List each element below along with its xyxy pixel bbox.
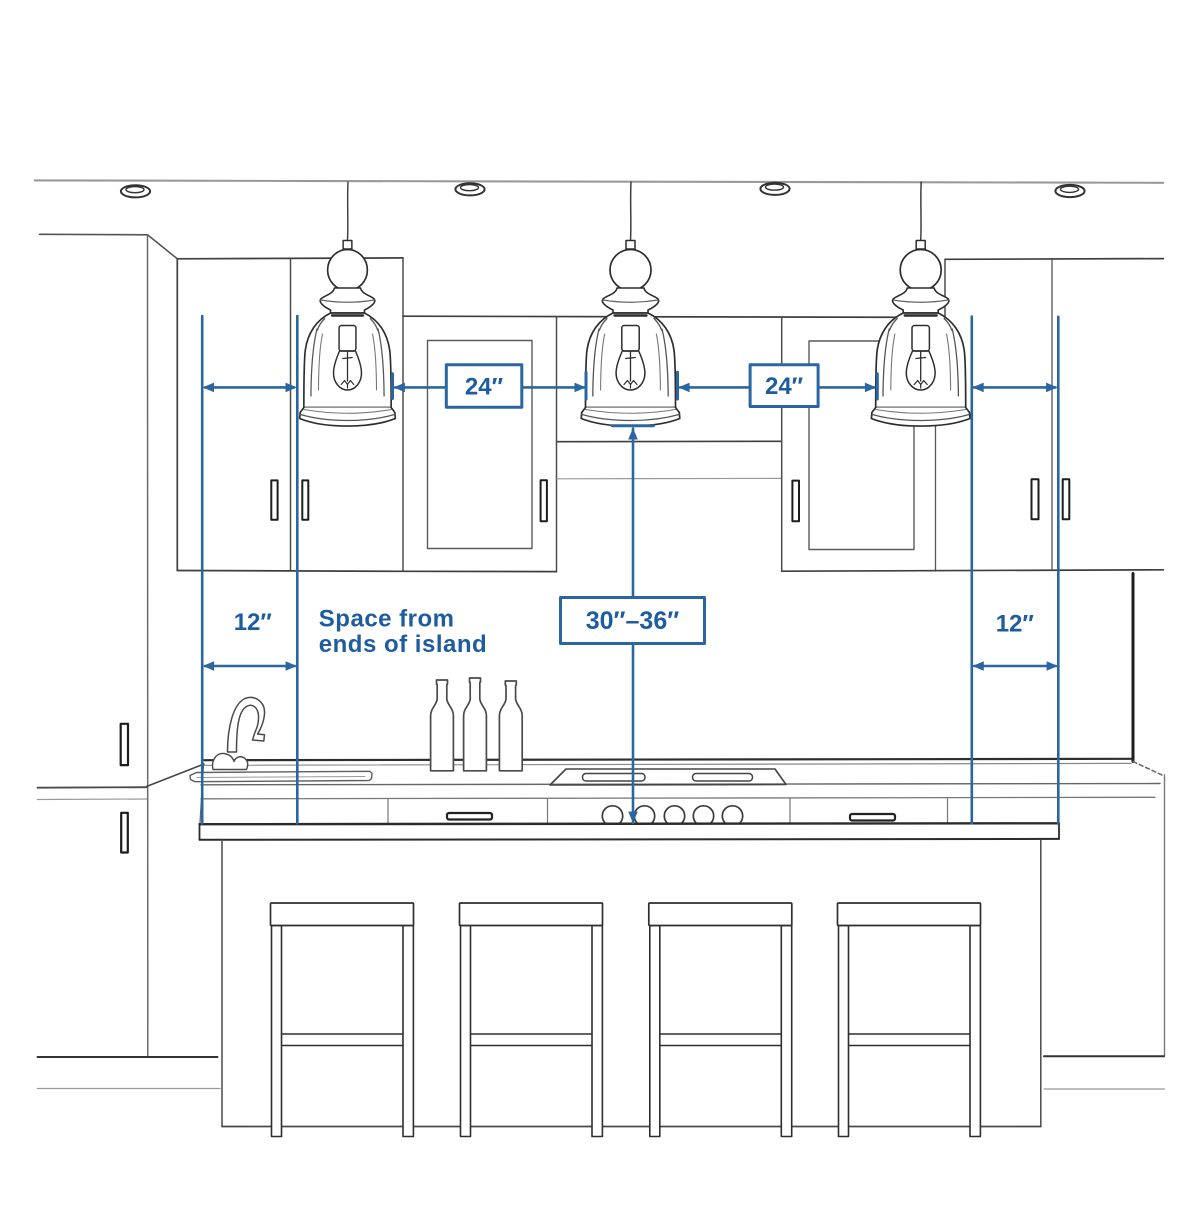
svg-text:24″: 24″ (465, 374, 504, 401)
svg-text:12″: 12″ (234, 609, 273, 636)
svg-text:30″–36″: 30″–36″ (586, 607, 679, 635)
svg-text:ends of island: ends of island (319, 631, 487, 658)
svg-text:Space from: Space from (319, 606, 455, 633)
svg-text:12″: 12″ (996, 611, 1035, 638)
svg-text:24″: 24″ (765, 373, 804, 400)
